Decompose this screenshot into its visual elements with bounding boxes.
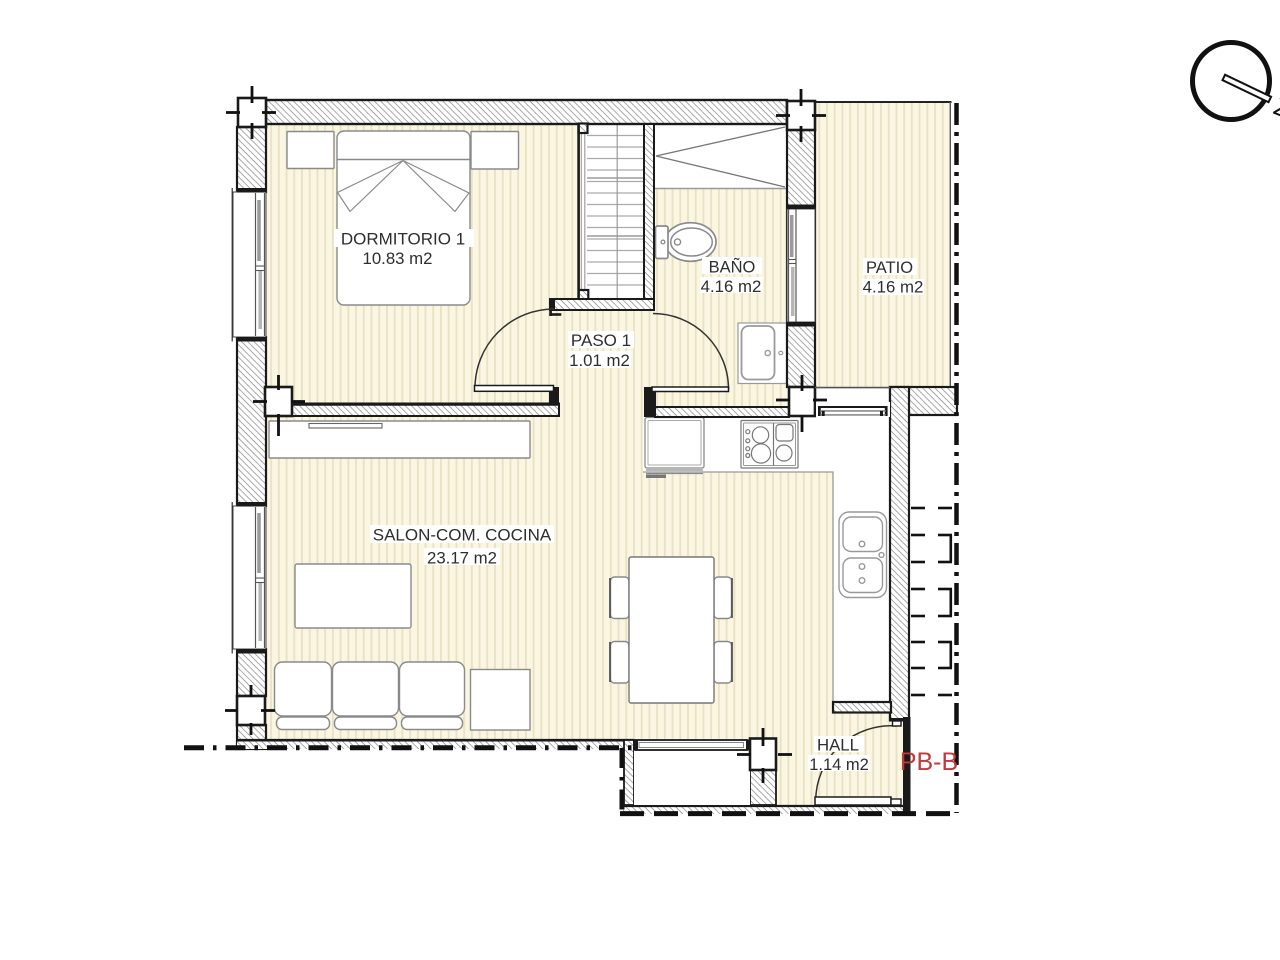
svg-text:PB-B: PB-B [900,748,958,776]
svg-text:4.16 m2: 4.16 m2 [701,277,762,296]
svg-text:1.01 m2: 1.01 m2 [569,351,630,370]
svg-text:BAÑO: BAÑO [709,257,756,277]
svg-text:SALON-COM. COCINA: SALON-COM. COCINA [373,526,552,545]
svg-text:PASO 1: PASO 1 [571,331,631,350]
svg-text:PATIO: PATIO [866,259,913,277]
svg-text:10.83 m2: 10.83 m2 [363,249,433,268]
svg-text:4.16 m2: 4.16 m2 [863,278,924,297]
svg-text:HALL: HALL [817,736,859,755]
svg-text:1.14 m2: 1.14 m2 [809,756,869,774]
svg-text:23.17 m2: 23.17 m2 [427,549,497,568]
svg-text:DORMITORIO 1: DORMITORIO 1 [341,230,465,249]
